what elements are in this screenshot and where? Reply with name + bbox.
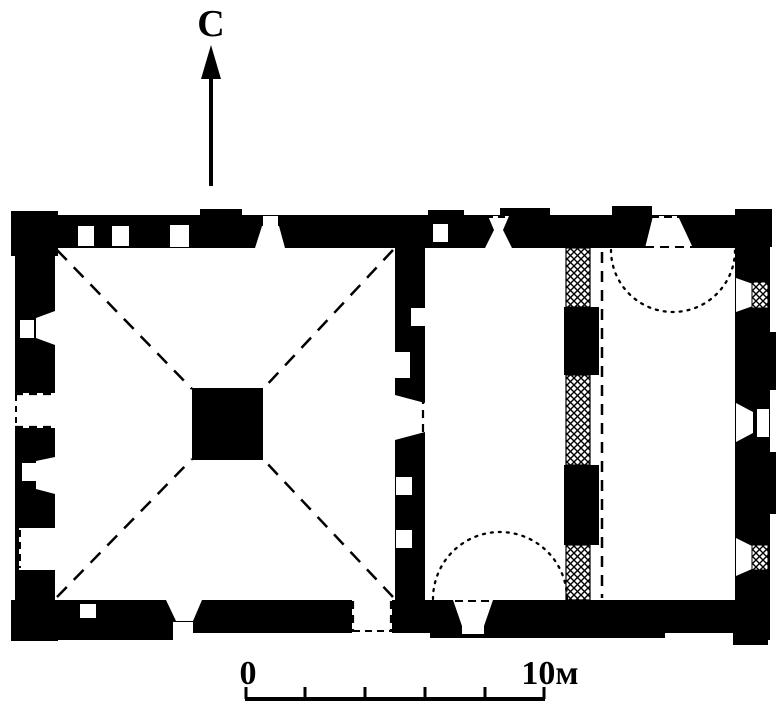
inner-wall-east-hatch-3: [566, 545, 590, 600]
window-right-upper: [736, 278, 768, 312]
inner-wall-east-hatch-1: [566, 248, 590, 307]
buttress-right-2: [769, 452, 776, 514]
niche-top-2: [112, 226, 129, 246]
niche-top-3: [170, 225, 189, 247]
niche-top-1: [78, 226, 94, 246]
pilaster-top-2: [428, 210, 464, 217]
corner-block-bottom-right: [733, 631, 768, 645]
pilaster-top-4: [612, 206, 652, 216]
inner-wall-east-hatch-2: [566, 375, 590, 465]
inner-wall-east-pier-2: [564, 465, 599, 545]
niche-inner-west-side-3: [396, 530, 412, 548]
opening-bottom-dashed: [352, 600, 392, 633]
buttress-right-1: [769, 332, 776, 390]
niche-bottom-1: [80, 604, 96, 618]
pilaster-top-1: [200, 209, 242, 217]
corner-block-top-left: [11, 211, 58, 256]
inner-wall-east-pier-1: [564, 307, 599, 375]
north-label: С: [197, 3, 224, 45]
scale-zero-label: 0: [240, 655, 257, 692]
opening-left-south: [19, 528, 55, 570]
corner-block-top-right: [735, 209, 772, 247]
floor-plan-drawing: С: [0, 0, 782, 714]
pilaster-top-3: [500, 208, 550, 216]
central-pier: [192, 388, 263, 460]
niche-inner-west-side-1: [395, 352, 410, 378]
niche-inner-east-side: [411, 308, 425, 326]
niche-top-4: [433, 224, 448, 242]
scale-ten-label: 10м: [521, 655, 578, 692]
opening-left-dashed: [14, 393, 55, 428]
pilaster-bottom-1: [13, 631, 173, 640]
niche-inner-west-side-2: [396, 477, 412, 495]
floor-plan-page: С: [0, 0, 782, 714]
